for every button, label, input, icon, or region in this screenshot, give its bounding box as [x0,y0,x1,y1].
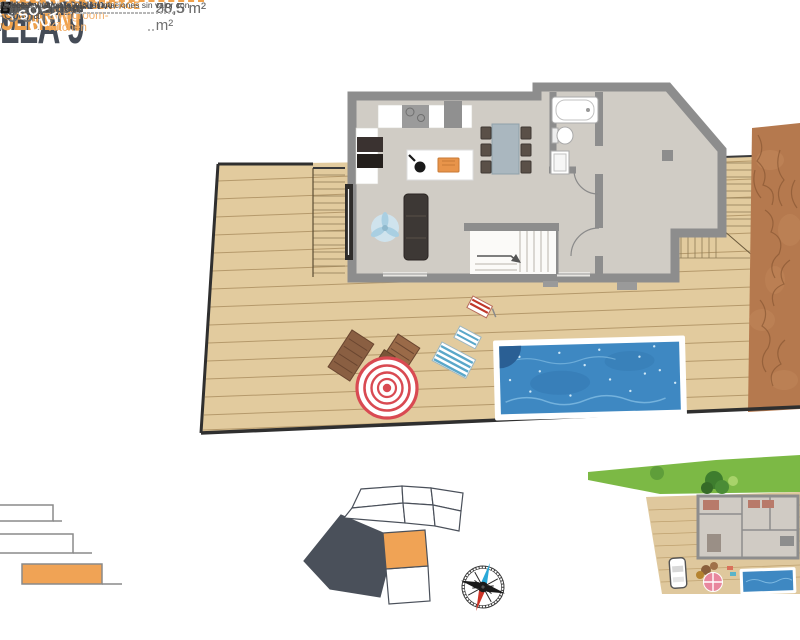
kitchen-island [407,150,473,180]
dirt-terrain [748,123,800,412]
cabinet [357,137,383,152]
pan [415,162,426,173]
bathroom-sink [551,151,569,174]
legend-graphic [0,505,122,584]
stove [402,105,429,128]
parasol-umbrella [357,358,417,418]
mini-car [669,557,687,588]
stairs-graphic [470,231,556,274]
window-left [345,184,353,260]
floorplan-page: LLA 9 TANO SEMENT ERFICIE CONSTRUIDA D S… [0,0,800,640]
plot-map-graphic [304,486,463,604]
mini-pool [740,567,797,595]
swimming-pool [493,336,687,421]
sofa [404,194,428,260]
plot-9-highlight [383,530,428,569]
compass-rose [454,557,512,618]
mini-site-plan [588,455,800,595]
wall-unit [662,150,673,161]
bathtub [552,97,598,123]
toilet [552,127,573,144]
dotted-leader [148,29,154,31]
scene-graphics [0,0,800,640]
legend-basement-bar [22,564,102,584]
building [345,87,722,290]
dotted-leader [77,12,174,14]
disclaimer-line2: Muebles y paneles solares no i [0,0,117,10]
dining-table [481,124,531,174]
mini-house [698,496,798,558]
sold-out-shape [304,515,387,597]
